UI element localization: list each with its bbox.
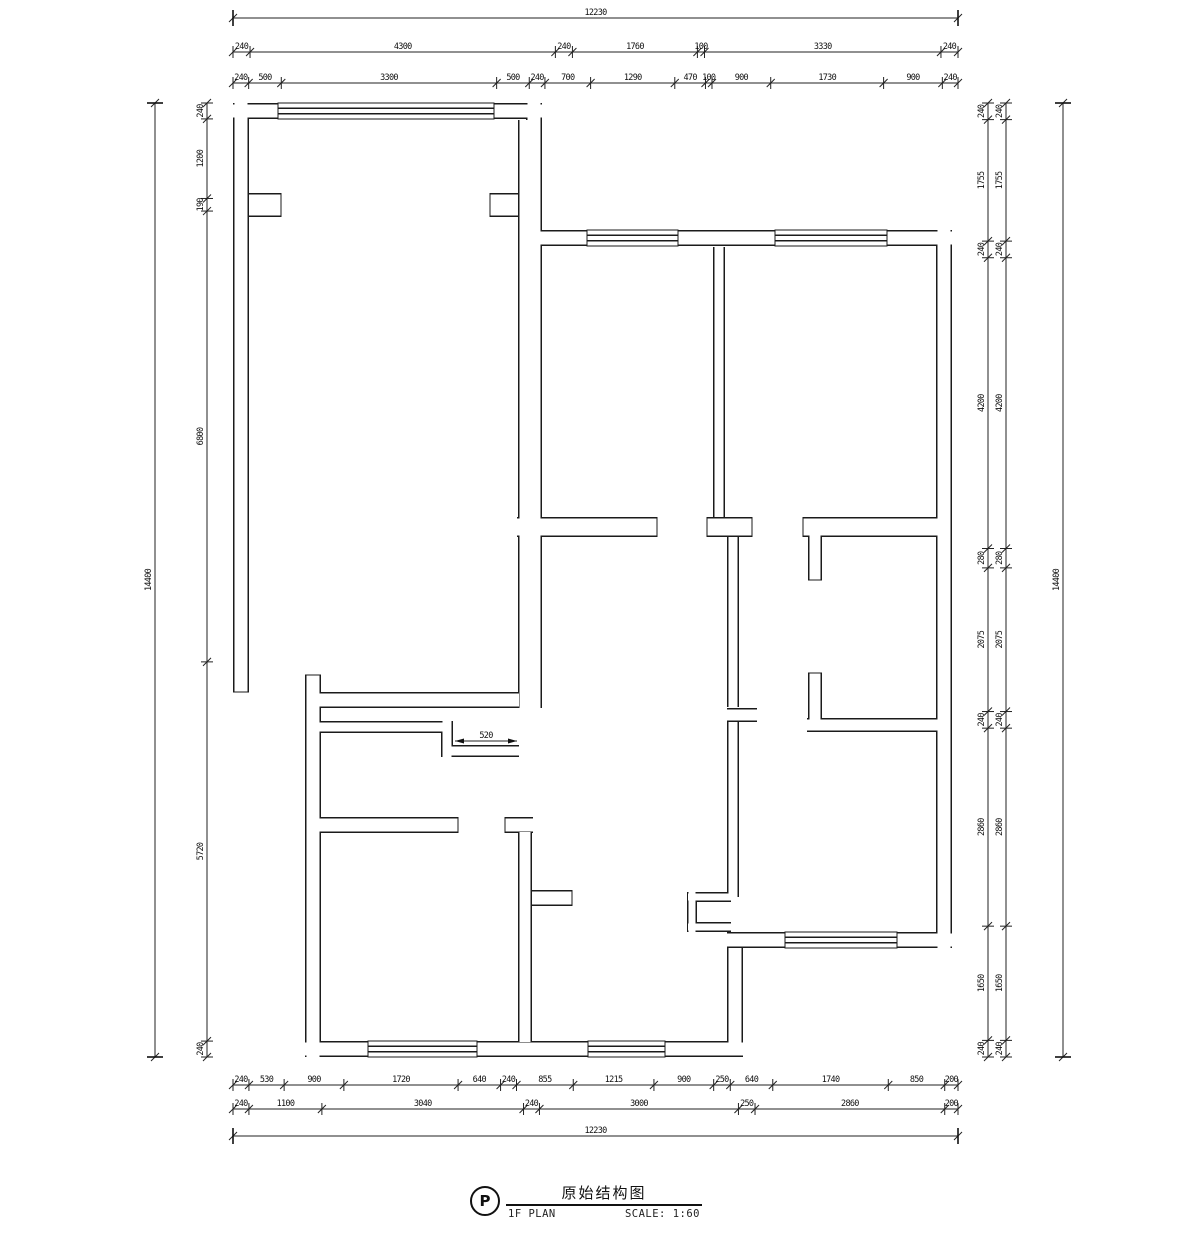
- window: [278, 103, 494, 119]
- dim-label: 240: [995, 1041, 1005, 1055]
- plan-title: 原始结构图: [506, 1182, 702, 1206]
- dim-label: 850: [910, 1075, 924, 1085]
- dim-label: 2860: [841, 1099, 859, 1109]
- dimension-left-inner: 240120019068005720240: [196, 99, 213, 1061]
- dimensions-layer: 1223024043002401760100333024024050033005…: [144, 8, 1071, 1144]
- plan-scale: SCALE: 1:60: [625, 1208, 700, 1220]
- cad-floor-plan-page: 1223024043002401760100333024024050033005…: [0, 0, 1200, 1240]
- windows-layer: [278, 103, 897, 1057]
- dimension-right-inner-b: 24017552404200280207524028601650240: [995, 99, 1012, 1061]
- dim-label: 4200: [995, 394, 1005, 412]
- dim-label: 100: [694, 42, 708, 52]
- dim-label: 5720: [196, 842, 206, 860]
- dim-label: 12230: [584, 8, 607, 18]
- dim-label: 240: [943, 42, 957, 52]
- dim-label: 200: [945, 1099, 959, 1109]
- dim-label: 190: [196, 198, 206, 212]
- dim-label: 530: [260, 1075, 274, 1085]
- dimension-interior-door: 520: [455, 731, 517, 744]
- dim-label: 4300: [394, 42, 412, 52]
- dim-label: 240: [234, 73, 248, 83]
- dimension-top-row-mid: 240430024017601003330240: [229, 42, 962, 58]
- dim-label: 240: [977, 713, 987, 727]
- dimension-top-overall: 12230: [229, 8, 962, 26]
- dim-label: 14400: [144, 568, 154, 591]
- dim-label: 240: [977, 1041, 987, 1055]
- dim-label: 3300: [380, 73, 398, 83]
- dim-label: 1760: [626, 42, 644, 52]
- dim-label: 2860: [995, 818, 1005, 836]
- dim-label: 200: [945, 1075, 959, 1085]
- dim-label: 500: [506, 73, 520, 83]
- title-block: P 原始结构图 1F PLAN SCALE: 1:60: [470, 1182, 702, 1220]
- dim-label: 1100: [277, 1099, 295, 1109]
- dim-label: 240: [196, 1042, 206, 1056]
- dim-label: 250: [715, 1075, 729, 1085]
- dim-label: 3040: [414, 1099, 432, 1109]
- dim-label: 900: [307, 1075, 321, 1085]
- dim-label: 240: [944, 73, 958, 83]
- dim-label: 280: [977, 551, 987, 565]
- dim-label: 240: [234, 1099, 248, 1109]
- dim-label: 2075: [977, 630, 987, 648]
- dim-label: 1650: [995, 974, 1005, 992]
- dimension-left-overall: 14400: [144, 99, 163, 1061]
- dim-label: 1290: [624, 73, 642, 83]
- dim-label: 250: [740, 1099, 754, 1109]
- dim-label: 280: [995, 551, 1005, 565]
- dim-label: 1730: [818, 73, 836, 83]
- dim-label: 1650: [977, 974, 987, 992]
- dim-label: 240: [977, 242, 987, 256]
- dimension-bottom-overall: 12230: [229, 1126, 962, 1144]
- window: [368, 1041, 477, 1057]
- dimension-bottom-row-inner: 2405309001720640240855121590025064017408…: [229, 1075, 962, 1091]
- dim-label: 520: [479, 731, 493, 741]
- dimension-bottom-row-mid: 2401100304024030002502860200: [229, 1099, 962, 1115]
- window: [587, 230, 678, 246]
- dim-label: 12230: [584, 1126, 607, 1136]
- dim-label: 500: [258, 73, 272, 83]
- dim-label: 900: [735, 73, 749, 83]
- dim-label: 640: [473, 1075, 487, 1085]
- dimension-right-inner-a: 24017552404200280207524028601650240: [977, 99, 994, 1061]
- dim-label: 240: [995, 713, 1005, 727]
- window: [785, 932, 897, 948]
- dim-label: 3000: [630, 1099, 648, 1109]
- dim-label: 900: [677, 1075, 691, 1085]
- dim-label: 1755: [995, 171, 1005, 189]
- dim-label: 240: [525, 1099, 539, 1109]
- dim-label: 4200: [977, 394, 987, 412]
- dim-label: 1720: [392, 1075, 410, 1085]
- dim-label: 1755: [977, 171, 987, 189]
- dim-label: 855: [538, 1075, 552, 1085]
- dim-label: 2860: [977, 818, 987, 836]
- dim-label: 240: [235, 42, 249, 52]
- dim-label: 900: [906, 73, 920, 83]
- dim-label: 240: [557, 42, 571, 52]
- dimension-top-row-inner: 2405003300500240700129047010090017309002…: [229, 73, 962, 89]
- plan-tag-circle: P: [470, 1186, 500, 1216]
- window: [775, 230, 887, 246]
- plan-tag-letter: P: [480, 1192, 491, 1210]
- dim-label: 240: [196, 104, 206, 118]
- dim-label: 240: [995, 242, 1005, 256]
- dim-label: 1740: [822, 1075, 840, 1085]
- dimension-right-overall: 14400: [1052, 99, 1071, 1061]
- window: [588, 1041, 665, 1057]
- dim-label: 2075: [995, 630, 1005, 648]
- dim-label: 3330: [814, 42, 832, 52]
- dim-label: 240: [530, 73, 544, 83]
- title-block-text: 原始结构图 1F PLAN SCALE: 1:60: [506, 1182, 702, 1220]
- dim-label: 1200: [196, 149, 206, 167]
- dim-label: 100: [702, 73, 716, 83]
- dim-label: 240: [995, 104, 1005, 118]
- dim-label: 14400: [1052, 568, 1062, 591]
- dim-label: 240: [234, 1075, 248, 1085]
- dim-label: 240: [502, 1075, 516, 1085]
- plan-subtitle: 1F PLAN: [508, 1208, 556, 1220]
- dim-label: 700: [561, 73, 575, 83]
- floor-plan-canvas: 1223024043002401760100333024024050033005…: [0, 0, 1200, 1240]
- dim-label: 640: [745, 1075, 759, 1085]
- dim-label: 1215: [605, 1075, 623, 1085]
- dim-label: 6800: [196, 427, 206, 445]
- dim-label: 240: [977, 104, 987, 118]
- dim-label: 470: [683, 73, 697, 83]
